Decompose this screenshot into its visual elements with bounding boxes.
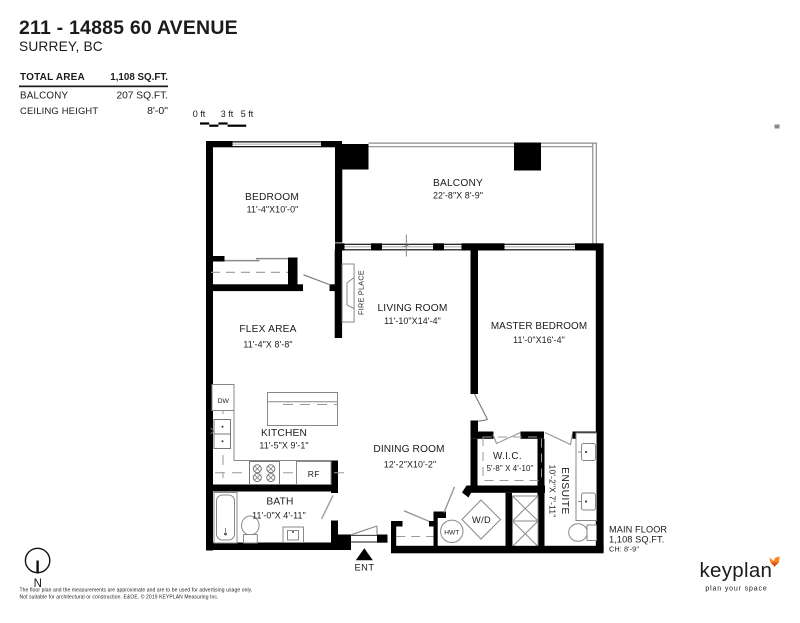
svg-text:MAIN FLOOR: MAIN FLOOR <box>609 525 667 535</box>
svg-text:keyplan: keyplan <box>700 559 773 582</box>
svg-text:211 - 14885 60 AVENUE: 211 - 14885 60 AVENUE <box>19 17 238 39</box>
svg-text:MASTER BEDROOM: MASTER BEDROOM <box>491 321 587 332</box>
svg-text:ENSUITE: ENSUITE <box>559 467 570 515</box>
svg-text:5 ft: 5 ft <box>241 109 254 119</box>
svg-text:1,108 SQ.FT.: 1,108 SQ.FT. <box>110 72 168 83</box>
svg-text:11'-4"X10'-0": 11'-4"X10'-0" <box>247 205 299 215</box>
svg-text:5'-8" X 4'-10": 5'-8" X 4'-10" <box>487 464 534 473</box>
svg-text:11'-0"X 4'-11": 11'-0"X 4'-11" <box>252 511 306 521</box>
svg-text:FLEX AREA: FLEX AREA <box>239 324 296 335</box>
svg-text:CEILING HEIGHT: CEILING HEIGHT <box>20 105 98 116</box>
svg-text:DW: DW <box>218 398 230 405</box>
svg-text:BATH: BATH <box>266 497 293 508</box>
svg-text:10'-2"X 7'-11": 10'-2"X 7'-11" <box>548 465 558 518</box>
svg-text:RF: RF <box>308 469 320 479</box>
svg-text:FIRE PLACE: FIRE PLACE <box>357 270 366 315</box>
svg-text:1,108 SQ.FT.: 1,108 SQ.FT. <box>609 535 664 545</box>
svg-text:0 ft: 0 ft <box>193 109 206 119</box>
svg-text:BEDROOM: BEDROOM <box>245 192 299 203</box>
svg-text:11'-0"X16'-4": 11'-0"X16'-4" <box>513 335 565 345</box>
svg-text:11'-10"X14'-4": 11'-10"X14'-4" <box>384 316 441 326</box>
svg-text:11'-4"X 8'-8": 11'-4"X 8'-8" <box>243 340 292 350</box>
svg-text:HWT: HWT <box>444 530 459 537</box>
svg-text:BALCONY: BALCONY <box>20 91 68 102</box>
svg-text:12'-2"X10'-2": 12'-2"X10'-2" <box>384 460 436 470</box>
svg-text:11'-5"X 9'-1": 11'-5"X 9'-1" <box>259 441 308 451</box>
svg-text:The floor plan and the measure: The floor plan and the measurements are … <box>20 588 253 594</box>
svg-text:DINING ROOM: DINING ROOM <box>373 444 444 455</box>
svg-text:W/D: W/D <box>472 515 491 525</box>
svg-text:KITCHEN: KITCHEN <box>261 428 307 439</box>
svg-text:CH: 8'-9": CH: 8'-9" <box>609 544 639 553</box>
svg-text:ENT: ENT <box>354 563 374 573</box>
svg-text:BALCONY: BALCONY <box>433 178 483 189</box>
svg-text:W.I.C.: W.I.C. <box>493 451 522 462</box>
svg-text:TOTAL AREA: TOTAL AREA <box>20 72 85 83</box>
svg-text:Not suitable for architectural: Not suitable for architectural or constr… <box>20 593 219 600</box>
svg-text:plan your space: plan your space <box>705 586 767 593</box>
svg-text:LIVING ROOM: LIVING ROOM <box>377 303 447 314</box>
svg-text:22'-8"X 8'-9": 22'-8"X 8'-9" <box>433 191 483 201</box>
svg-text:3 ft: 3 ft <box>221 109 234 119</box>
svg-text:207 SQ.FT.: 207 SQ.FT. <box>116 91 168 102</box>
svg-text:SURREY, BC: SURREY, BC <box>19 39 103 54</box>
svg-text:8'-0": 8'-0" <box>147 105 168 117</box>
